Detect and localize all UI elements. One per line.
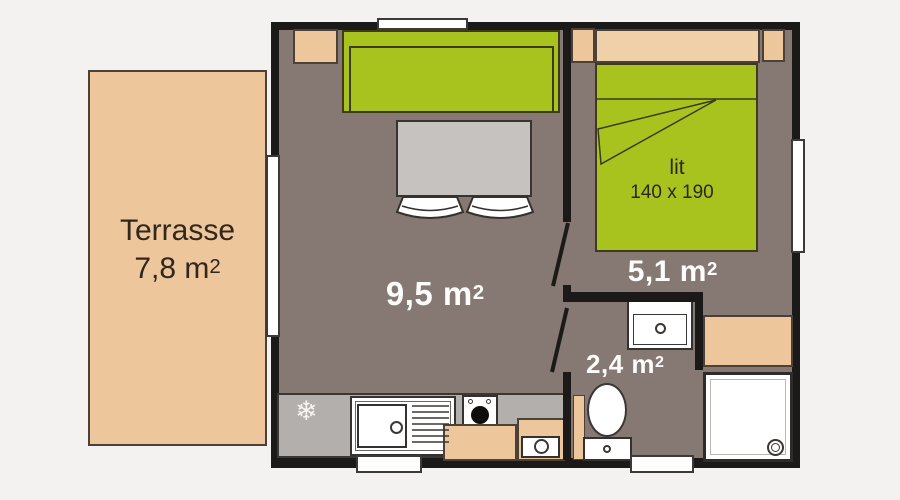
terrace-area: 7,8 m2 [134, 254, 220, 284]
water-heater-dial [534, 439, 549, 454]
bed-dimensions: 140 x 190 [612, 183, 732, 202]
sofa-seat [349, 46, 554, 111]
kitchen-sink-unit [350, 396, 456, 456]
terrace-door [266, 155, 280, 337]
nightstand-left [571, 28, 595, 63]
dining-table [396, 120, 532, 197]
nightstand-right [762, 29, 785, 62]
stove-burner [471, 406, 489, 424]
fridge-snowflake-icon: ❄ [295, 398, 318, 425]
toilet-flush-button [603, 445, 611, 453]
entrance-door [356, 455, 422, 473]
toilet-bowl [587, 383, 627, 437]
bathroom-area-label: 2,4 m2 [560, 351, 690, 377]
bed-headboard [595, 29, 760, 63]
partition-living-bedroom [563, 28, 571, 222]
cabinet [293, 29, 338, 64]
bathroom-window [630, 455, 694, 473]
living-room-window [377, 18, 468, 30]
bed-label: lit [617, 157, 737, 178]
kitchen-cabinet-low [443, 424, 517, 461]
sink-drain [390, 421, 403, 434]
stove [462, 395, 498, 427]
partition-bathroom-left [563, 372, 571, 460]
shower-drain [767, 439, 784, 456]
kitchen-appliance-block [517, 418, 565, 461]
stove-knob-left [468, 399, 473, 404]
living-room-area-label: 9,5 m2 [350, 277, 520, 310]
shower-drain-inner [771, 443, 780, 452]
sofa [342, 30, 560, 113]
partition-bathroom-top [563, 292, 703, 302]
terrace: Terrasse 7,8 m2 [88, 70, 267, 446]
terrace-name: Terrasse [120, 216, 235, 246]
terrace-label: Terrasse 7,8 m2 [90, 64, 265, 436]
bedroom-window [791, 139, 805, 253]
bathroom-sink [627, 300, 693, 350]
stove-knob-right [486, 399, 491, 404]
shower [703, 372, 793, 462]
bathroom-counter [703, 315, 793, 367]
bedroom-area-label: 5,1 m2 [590, 257, 755, 287]
bathroom-sink-drain [655, 323, 666, 334]
partition-bathroom-right [695, 302, 703, 370]
water-heater [521, 436, 560, 458]
toilet-tank [583, 437, 632, 461]
floor-plan: Terrasse 7,8 m2 ❄ [0, 0, 900, 500]
